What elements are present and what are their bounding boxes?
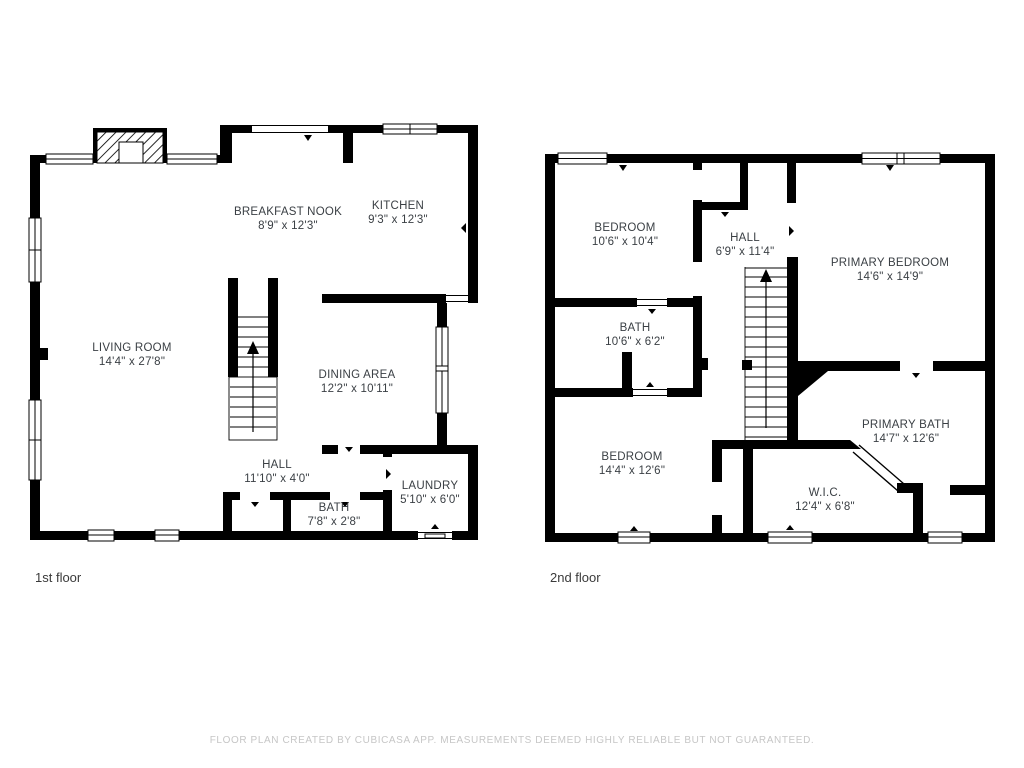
room-dimensions: 11'10" x 4'0" (244, 473, 309, 487)
room-name: W.I.C. (795, 487, 855, 501)
room-name: BATH (605, 322, 665, 336)
stairs-up-arrow-icon (247, 341, 259, 354)
second-floor-stairs (745, 267, 788, 440)
room-label-bath-1: BATH 7'8" x 2'8" (307, 502, 360, 529)
room-dimensions: 7'8" x 2'8" (307, 516, 360, 530)
room-name: KITCHEN (368, 200, 428, 214)
disclaimer-text: FLOOR PLAN CREATED BY CUBICASA APP. MEAS… (0, 735, 1024, 746)
room-dimensions: 12'4" x 6'8" (795, 501, 855, 515)
room-name: LIVING ROOM (92, 342, 171, 356)
room-name: BEDROOM (599, 451, 665, 465)
room-label-living-room: LIVING ROOM 14'4" x 27'8" (92, 342, 171, 369)
room-name: PRIMARY BEDROOM (831, 257, 949, 271)
room-dimensions: 14'6" x 14'9" (831, 271, 949, 285)
fireplace (93, 128, 167, 163)
room-name: DINING AREA (319, 369, 396, 383)
room-name: PRIMARY BATH (862, 419, 950, 433)
floorplan-page: BREAKFAST NOOK 8'9" x 12'3" KITCHEN 9'3"… (0, 0, 1024, 768)
room-dimensions: 14'4" x 12'6" (599, 465, 665, 479)
room-label-primary-bath: PRIMARY BATH 14'7" x 12'6" (862, 419, 950, 446)
room-dimensions: 14'4" x 27'8" (92, 356, 171, 370)
room-label-hall-2: HALL 6'9" x 11'4" (716, 232, 775, 259)
room-name: BREAKFAST NOOK (234, 206, 342, 220)
room-dimensions: 12'2" x 10'11" (319, 383, 396, 397)
room-label-bedroom-1: BEDROOM 10'6" x 10'4" (592, 222, 658, 249)
room-label-bedroom-2: BEDROOM 14'4" x 12'6" (599, 451, 665, 478)
room-dimensions: 9'3" x 12'3" (368, 214, 428, 228)
room-dimensions: 8'9" x 12'3" (234, 220, 342, 234)
room-label-hall-1: HALL 11'10" x 4'0" (244, 459, 309, 486)
room-label-primary-bedroom: PRIMARY BEDROOM 14'6" x 14'9" (831, 257, 949, 284)
room-dimensions: 10'6" x 10'4" (592, 236, 658, 250)
room-dimensions: 6'9" x 11'4" (716, 246, 775, 260)
room-label-laundry: LAUNDRY 5'10" x 6'0" (400, 480, 460, 507)
room-dimensions: 5'10" x 6'0" (400, 494, 460, 508)
room-label-kitchen: KITCHEN 9'3" x 12'3" (368, 200, 428, 227)
opening-markers (251, 135, 920, 531)
room-name: HALL (716, 232, 775, 246)
room-name: HALL (244, 459, 309, 473)
first-floor-caption: 1st floor (35, 570, 81, 585)
room-name: LAUNDRY (400, 480, 460, 494)
room-name: BEDROOM (592, 222, 658, 236)
room-name: BATH (307, 502, 360, 516)
second-floor-caption: 2nd floor (550, 570, 601, 585)
room-label-breakfast-nook: BREAKFAST NOOK 8'9" x 12'3" (234, 206, 342, 233)
room-dimensions: 14'7" x 12'6" (862, 433, 950, 447)
floorplan-drawing (0, 0, 1024, 768)
room-label-dining-area: DINING AREA 12'2" x 10'11" (319, 369, 396, 396)
wic-diagonal-wall (853, 445, 904, 491)
room-dimensions: 10'6" x 6'2" (605, 336, 665, 350)
room-label-bath-2: BATH 10'6" x 6'2" (605, 322, 665, 349)
stairs-up-arrow-icon (760, 269, 772, 282)
room-label-wic: W.I.C. 12'4" x 6'8" (795, 487, 855, 514)
